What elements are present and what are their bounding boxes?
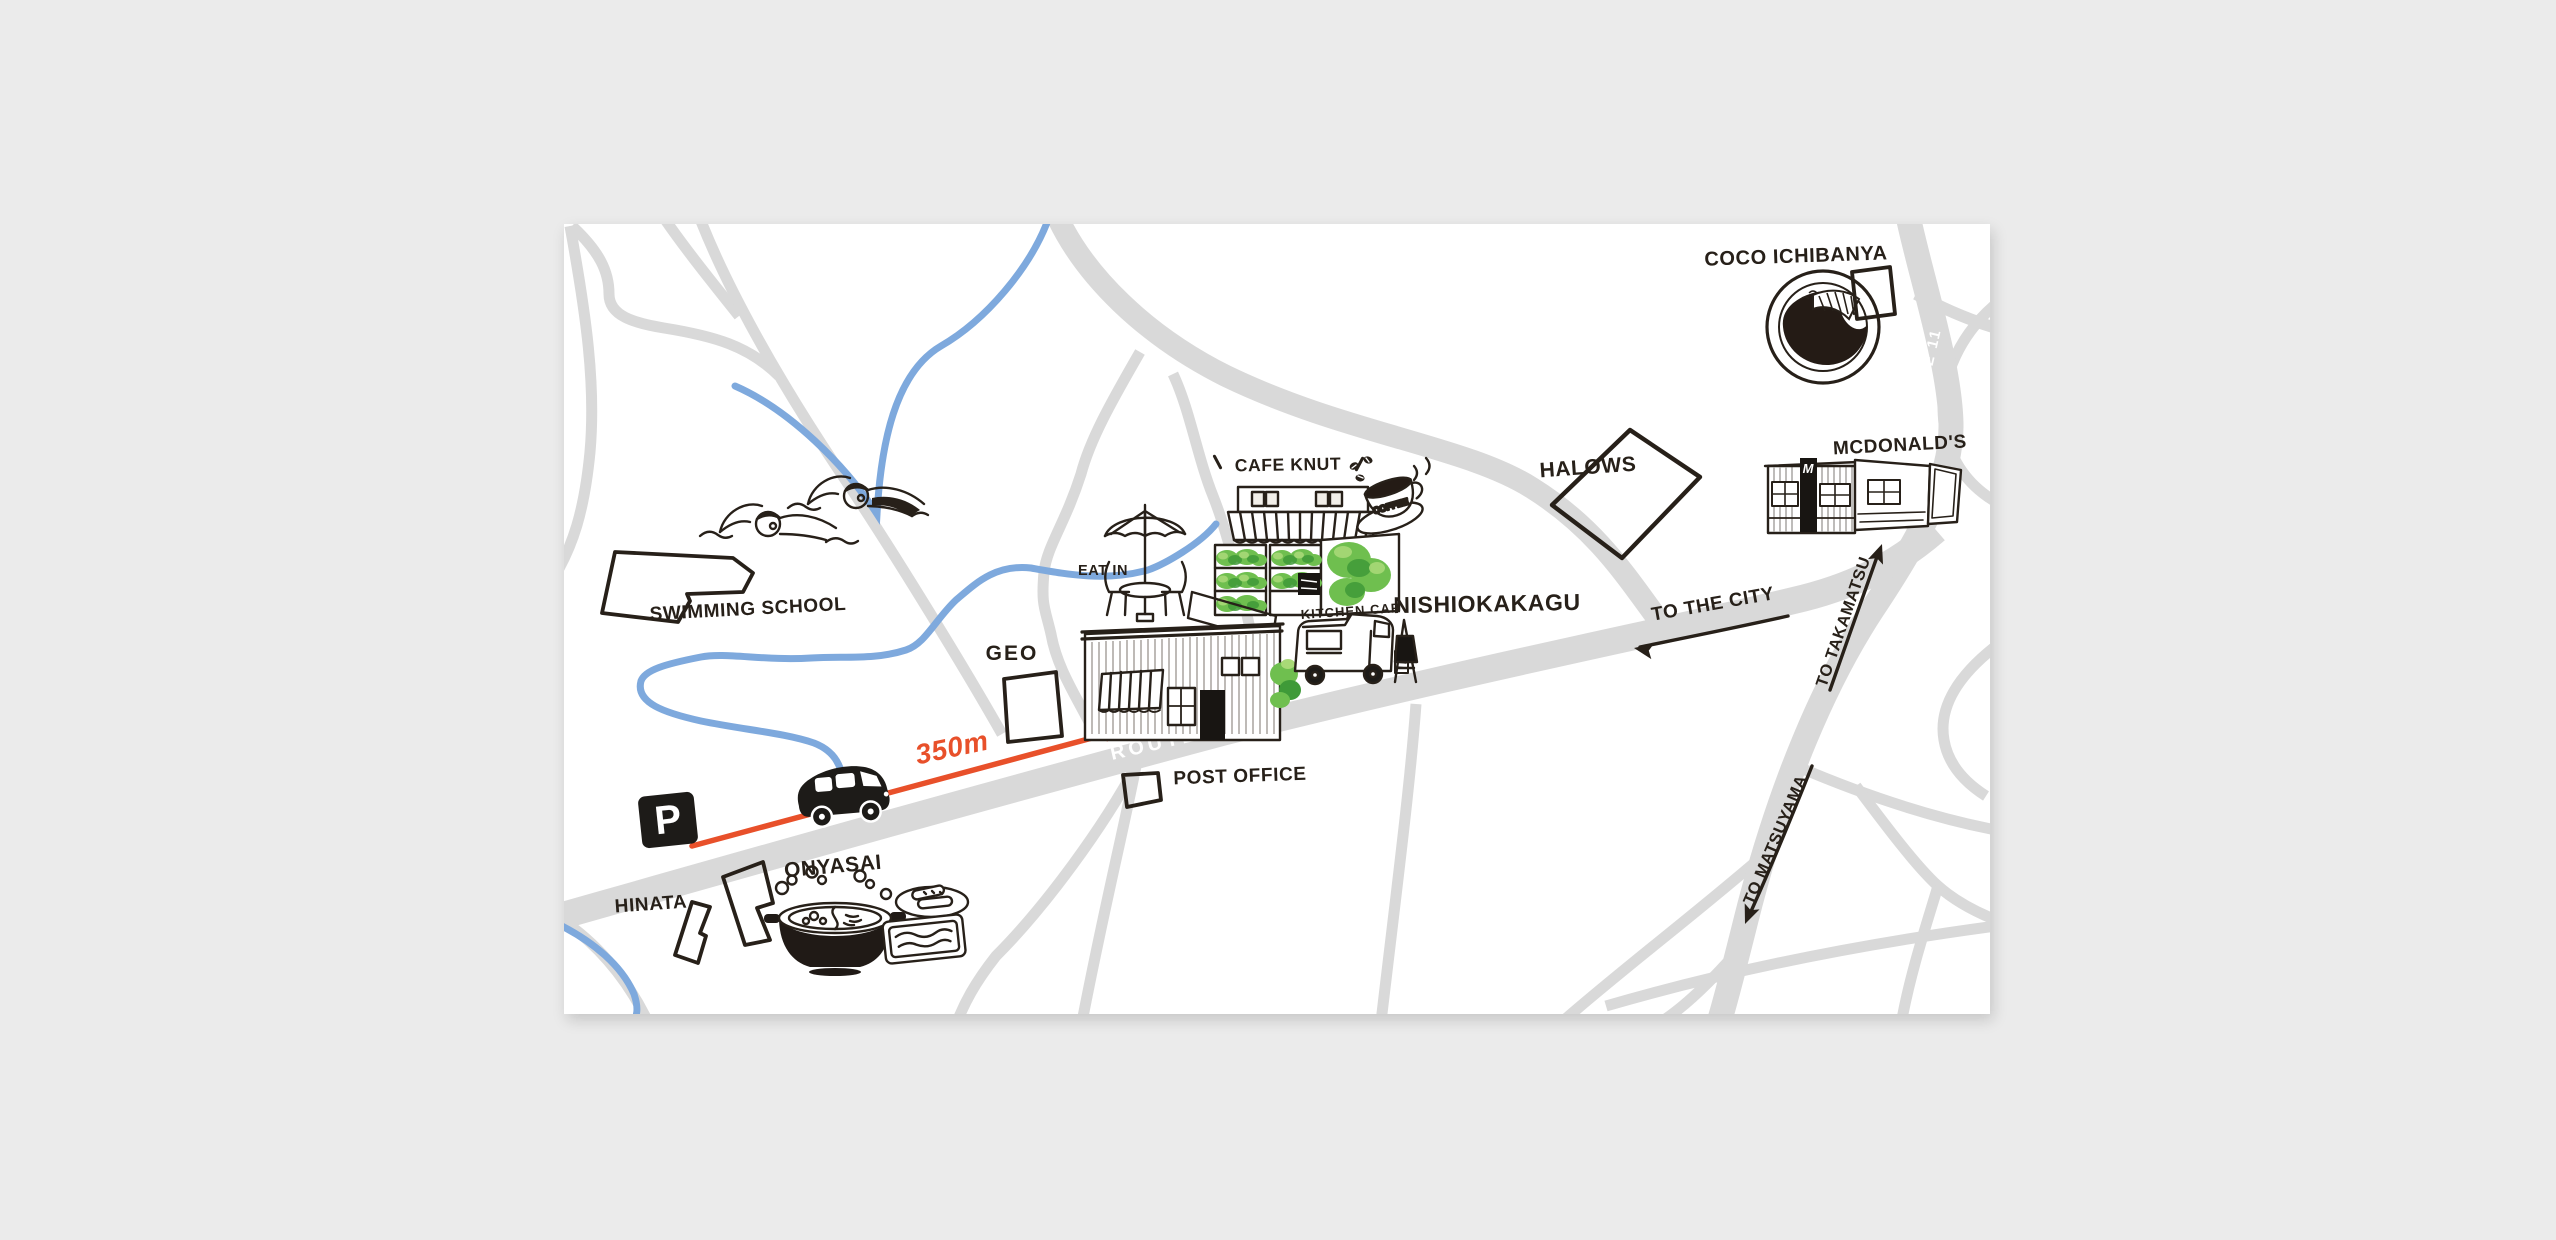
- label-eat-in: EAT IN: [1078, 563, 1128, 579]
- swimmers-icon: [696, 462, 936, 552]
- mcdonalds-sign-m: M: [1803, 461, 1815, 476]
- illustrated-map: ROUTE 237 ROUTE 11: [564, 224, 1990, 1014]
- halows-building: [1542, 420, 1712, 570]
- nishiokakagu-building: [1076, 582, 1301, 747]
- mcdonalds-building: M: [1760, 452, 1970, 544]
- parking-sign: P: [637, 791, 698, 849]
- label-nishiokakagu: NISHIOKAKAGU: [1393, 589, 1581, 619]
- van-icon: [788, 758, 894, 830]
- shop-board: [1298, 573, 1320, 595]
- coco-ichibanya-building: [1844, 262, 1902, 326]
- label-post-office: POST OFFICE: [1173, 764, 1307, 791]
- label-cafe-knut: CAFE KNUT: [1235, 454, 1342, 477]
- parking-sign-label: P: [653, 799, 684, 842]
- geo-building: [994, 668, 1070, 748]
- label-geo: GEO: [986, 642, 1039, 666]
- food-trays-icon: [872, 876, 976, 972]
- road-left-edge: [564, 226, 592, 574]
- post-office-building: [1119, 769, 1167, 813]
- a-frame-sign: [1386, 614, 1426, 688]
